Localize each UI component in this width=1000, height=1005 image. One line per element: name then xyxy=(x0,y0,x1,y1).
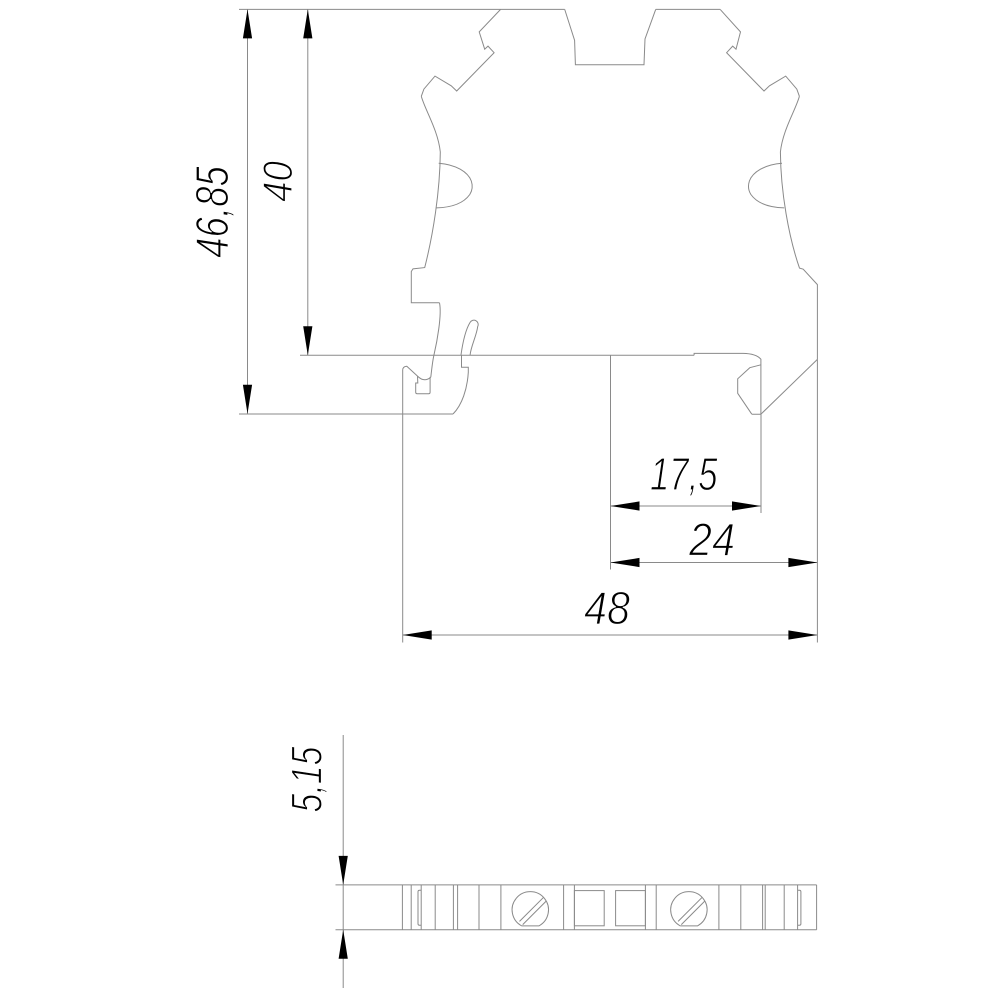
svg-text:40: 40 xyxy=(254,160,301,202)
svg-text:48: 48 xyxy=(584,582,630,634)
svg-text:17,5: 17,5 xyxy=(650,448,718,500)
svg-text:24: 24 xyxy=(688,514,735,566)
svg-text:5,15: 5,15 xyxy=(283,746,332,812)
svg-text:46,85: 46,85 xyxy=(186,166,238,258)
